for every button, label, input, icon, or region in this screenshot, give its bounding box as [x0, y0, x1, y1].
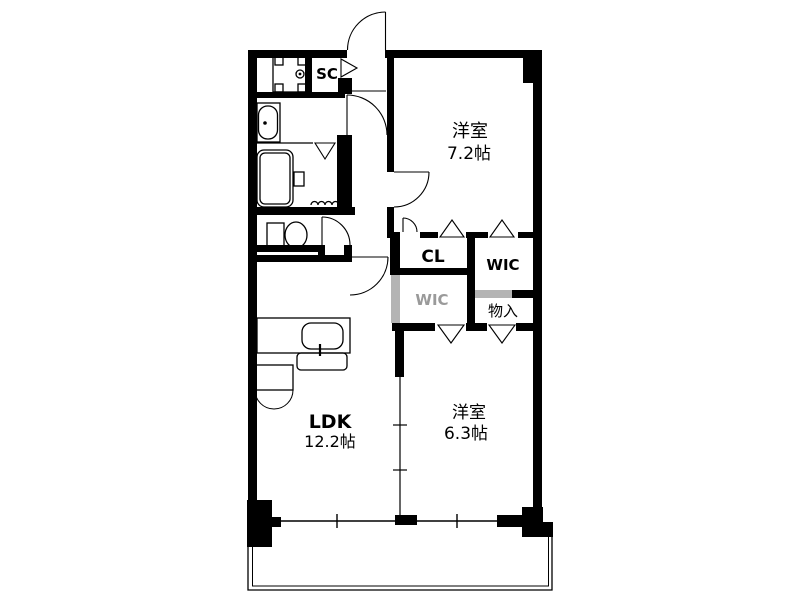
bath-folding-door-icon — [315, 143, 335, 159]
wall-closet-bottom-2 — [466, 323, 487, 331]
wall-wic-lower-left-watermark — [391, 275, 400, 323]
cl-folding-door-icon — [440, 220, 464, 237]
balcony-rail-icon — [248, 537, 552, 590]
label-ldk-size: 12.2帖 — [304, 432, 356, 451]
label-bedroom2-name: 洋室 — [452, 403, 486, 423]
toilet-icon — [267, 222, 307, 248]
wall-right — [533, 58, 542, 507]
label-ldk-name: LDK — [309, 411, 353, 433]
label-bedroom2-size: 6.3帖 — [444, 424, 488, 444]
wall-closet-top-4 — [518, 232, 533, 238]
wall-closet-top-2 — [420, 232, 438, 238]
wall-cl-wic-divider — [394, 268, 467, 275]
washroom-door-icon — [347, 95, 387, 135]
partition-line-icon — [393, 377, 407, 517]
label-storage: 物入 — [488, 302, 518, 320]
label-bedroom1-size: 7.2帖 — [447, 144, 491, 164]
double-door-cabinet-icon — [255, 365, 293, 409]
shoe-closet-folding-door-icon — [341, 59, 357, 77]
bedroom1-door-icon — [394, 172, 429, 207]
wall-closet-top-3 — [466, 232, 488, 238]
wall-bath-right — [337, 135, 352, 212]
wall-partition-top — [395, 331, 404, 377]
window-stub-center — [395, 515, 417, 525]
wic-lower-folding-door-icon — [438, 325, 464, 343]
windows — [281, 377, 497, 528]
wall-washroom-top — [257, 92, 345, 98]
label-wic-lower: WIC — [415, 291, 448, 309]
wall-storage-top-watermark — [475, 290, 512, 298]
entrance-door-icon — [348, 12, 386, 50]
bathtub-icon — [257, 150, 339, 207]
wall-closet-bottom-1 — [392, 323, 435, 331]
washbasin-icon — [257, 103, 280, 142]
wall-closet-bottom-3 — [516, 323, 542, 331]
wall-sc-right — [338, 78, 352, 94]
label-bedroom1-name: 洋室 — [452, 121, 488, 142]
washer-pan-icon — [273, 55, 308, 92]
wall-left — [248, 50, 257, 500]
label-wic-upper: WIC — [486, 256, 519, 274]
kitchen-counter-icon — [257, 318, 350, 370]
pillar-bottom-left — [247, 500, 272, 547]
toilet-door-icon — [322, 217, 350, 245]
window-stub-right — [497, 515, 522, 527]
pillar-bottom-right-b — [522, 522, 553, 537]
wall-ldk-top — [248, 255, 352, 262]
fixtures — [255, 55, 350, 409]
wall-toilet-bottom — [255, 245, 322, 252]
wall-hall-right-upper — [387, 58, 394, 172]
storage-folding-door-icon — [489, 325, 515, 343]
wall-bath-bottom — [255, 207, 355, 215]
label-cl: CL — [421, 247, 444, 267]
label-shoe-closet: SC — [316, 65, 338, 83]
wic-upper-folding-door-icon — [490, 220, 514, 237]
floorplan-canvas: SC 洋室 7.2帖 CL WIC WIC 物入 LDK 12.2帖 洋室 6.… — [0, 0, 800, 600]
kitchen-sink-icon — [302, 323, 343, 349]
wall-top-right — [385, 50, 542, 58]
ldk-door-icon — [350, 257, 388, 295]
wall-wic-storage-divider — [512, 290, 533, 298]
wall-closet-top-1 — [388, 232, 400, 238]
pillar-bottom-right-a — [522, 507, 543, 522]
floorplan-drawing: SC 洋室 7.2帖 CL WIC WIC 物入 LDK 12.2帖 洋室 6.… — [0, 0, 800, 600]
wall-hall-bottom-stub — [344, 245, 352, 255]
wall-closet-divider-v — [467, 238, 475, 323]
window-stub-left — [272, 517, 281, 527]
wall-toilet-door-stub — [318, 245, 325, 255]
cl-hinged-door-icon — [403, 218, 417, 232]
